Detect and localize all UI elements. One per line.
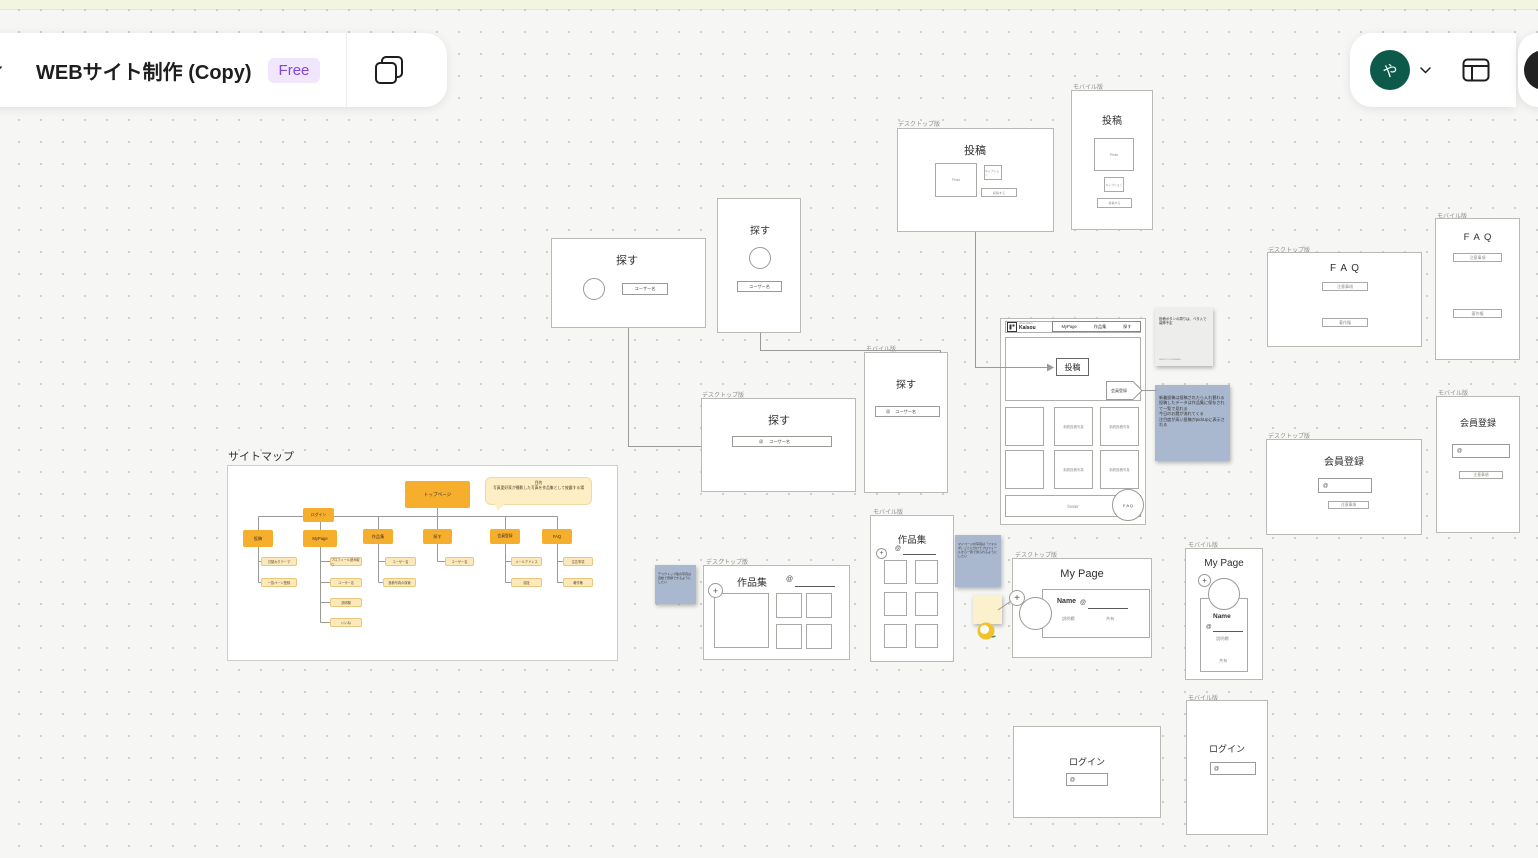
register-mobile-input[interactable]: @	[1452, 444, 1510, 458]
leaf-label: いいね	[341, 620, 351, 625]
search-desktop-title: 探す	[749, 412, 809, 428]
register-notes-label: 注意事項	[1341, 503, 1356, 508]
sitemap-leaf[interactable]: いいね	[330, 618, 362, 627]
sitemap-leaf[interactable]: 説明欄	[330, 598, 362, 607]
works-mobile-title: 作品集	[882, 532, 942, 546]
new-photo-label: 新着投稿写真	[1063, 424, 1083, 429]
leaf-label: ユーザー名	[393, 559, 409, 564]
leaf-label: 一覧ページ登録	[268, 580, 290, 585]
works-desktop-thumb[interactable]	[776, 624, 802, 649]
works-mobile-thumb[interactable]	[884, 560, 907, 584]
search-frame-mobile[interactable]	[864, 352, 948, 493]
sitemap-node-works[interactable]: 作品集	[363, 529, 393, 544]
login-desktop-title: ログイン	[1057, 755, 1117, 768]
node-label: 作品集	[372, 534, 385, 540]
sitemap-leaf[interactable]: ユーザー名	[330, 578, 362, 587]
file-title[interactable]: WEBサイト制作 (Copy)	[36, 56, 252, 85]
home-post-button[interactable]: 投稿	[1056, 358, 1089, 376]
mypage-desktop-share: 共有	[1106, 616, 1114, 622]
search-desktop-input[interactable]: @ ユーザー名	[732, 436, 832, 447]
nav-search[interactable]: 探す	[1123, 324, 1131, 330]
footer-label: footer	[1067, 504, 1078, 509]
sitemap-leaf[interactable]: ユーザー名	[445, 557, 474, 566]
node-label: 会員登録	[497, 534, 512, 539]
kaisou-logo-icon	[1007, 322, 1017, 332]
mypage-desktop-at: @	[1080, 600, 1086, 606]
post-mobile-submit-button[interactable]: 投稿する	[1097, 198, 1132, 208]
home-grid-box-1[interactable]	[1005, 407, 1044, 446]
avatar-initial: や	[1382, 60, 1397, 81]
register-mobile-notes-button[interactable]: 注意事項	[1459, 471, 1503, 479]
leaf-label: 認証	[523, 580, 529, 585]
faq-mobile-copyright-button[interactable]: 著作権	[1453, 309, 1502, 318]
avatar[interactable]: や	[1370, 50, 1410, 90]
at-symbol: @	[1214, 766, 1219, 772]
sitemap-node-post[interactable]: 投稿	[243, 530, 273, 547]
at-symbol: @	[759, 439, 763, 444]
faq-notes-label: 注意事項	[1337, 284, 1353, 290]
home-post-label: 投稿	[1065, 362, 1081, 373]
sitemap-login-label: ログイン	[311, 513, 326, 518]
sitemap-node-search[interactable]: 探す	[423, 529, 452, 544]
home-grid-box-4[interactable]	[1005, 450, 1044, 489]
mypage-mobile-name: Name	[1213, 613, 1231, 620]
search-b-avatar-circle[interactable]	[749, 247, 771, 269]
search-a-username-input[interactable]: ユーザー名	[622, 283, 668, 295]
sticky-gray-author: SACHITO KURIHARA	[1159, 359, 1181, 362]
at-symbol: @	[1070, 777, 1075, 783]
post-mobile-title: 投稿	[1082, 112, 1142, 127]
sitemap-leaf[interactable]: 注意事項	[563, 557, 593, 566]
at-symbol: @	[886, 409, 890, 414]
home-grid-box-6[interactable]: 新着投稿写真	[1100, 450, 1139, 489]
sitemap-top-label: トップページ	[424, 492, 451, 498]
photo-label: Photo	[1110, 153, 1118, 157]
register-desktop-title: 会員登録	[1314, 453, 1374, 468]
login-mobile-input[interactable]: @	[1210, 762, 1256, 775]
sticky-note-works-desktop[interactable]: デスクトップ版の写真は自動で登録できるようにしたい	[655, 565, 696, 604]
doodle-drawing	[976, 620, 999, 643]
node-label: MyPage	[312, 536, 327, 541]
faq-mobile-title: F A Q	[1448, 232, 1508, 243]
post-desktop-caption-box[interactable]: キャプション	[984, 165, 1002, 180]
search-desktop-username: ユーザー名	[769, 439, 790, 445]
login-frame-desktop[interactable]	[1013, 726, 1161, 818]
works-mobile-at: @	[895, 546, 901, 552]
mypage-desktop-desc: 説明欄	[1062, 616, 1075, 622]
nav-works[interactable]: 作品集	[1094, 324, 1107, 330]
leaf-label: 投稿写真の保管	[388, 580, 410, 585]
login-mobile-title: ログイン	[1197, 742, 1257, 755]
mypage-mobile-avatar-circle[interactable]	[1208, 578, 1240, 610]
home-grid-box-5[interactable]: 新着投稿写真	[1054, 450, 1093, 489]
faq-desktop-notes-button[interactable]: 注意事項	[1322, 282, 1368, 291]
works-desktop-main-box[interactable]	[714, 593, 769, 648]
leaf-label: メールアドレス	[515, 559, 537, 564]
caption-label: キャプション	[1106, 183, 1123, 187]
works-desktop-at: @	[786, 576, 793, 583]
leaf-label: 著作権	[573, 580, 583, 585]
file-toolbar: WEBサイト制作 (Copy) Free	[0, 33, 447, 107]
node-label: FAQ	[553, 534, 561, 539]
sitemap-node-mypage[interactable]: MyPage	[303, 530, 337, 547]
register-desktop-input[interactable]: @	[1318, 478, 1372, 493]
mypage-mobile-at-line[interactable]	[1213, 625, 1243, 632]
at-symbol: @	[1457, 448, 1462, 454]
leaf-label: 注意事項	[572, 559, 585, 564]
login-desktop-input[interactable]: @	[1066, 773, 1108, 786]
works-mobile-thumb[interactable]	[915, 592, 938, 616]
faq-mobile-notes-button[interactable]: 注意事項	[1453, 253, 1502, 262]
works-mobile-thumb[interactable]	[884, 592, 907, 616]
post-desktop-photo-box[interactable]: Photo	[935, 163, 977, 197]
home-nav-bar: MyPage 作品集 探す	[1052, 321, 1141, 332]
works-mobile-thumb[interactable]	[915, 560, 938, 584]
sticky-note-mypage[interactable]: マイページの写真は「フォルダ」ごとに分けてプロフィールから一覧で見られるようにし…	[955, 535, 1001, 587]
sticky-blue-mypage-text: マイページの写真は「フォルダ」ごとに分けてプロフィールから一覧で見られるようにし…	[958, 542, 997, 558]
nav-mypage[interactable]: MyPage	[1061, 324, 1076, 329]
svg-text:会員登録: 会員登録	[1111, 387, 1127, 393]
new-photo-label: 新着投稿写真	[1063, 467, 1083, 472]
sitemap-leaf[interactable]: 投稿写真の保管	[383, 578, 416, 587]
search-mobile-input[interactable]: @ ユーザー名	[875, 406, 940, 417]
plus-icon: +	[1202, 576, 1207, 585]
bubble-body: 写真愛好家が撮影した写真を作品集として披露する場	[490, 486, 587, 491]
sitemap-node-login[interactable]: ログイン	[303, 508, 334, 522]
leaf-label: 日替わりテーマ	[268, 559, 290, 564]
avatar-chevron-down-icon[interactable]	[1420, 61, 1431, 79]
post-mobile-caption-box[interactable]: キャプション	[1104, 177, 1124, 192]
mypage-mobile-plus-button[interactable]: +	[1198, 574, 1211, 587]
sticky-gray-text: 投稿ボタンの周りは、ベタ入で装飾予定	[1159, 317, 1206, 326]
post-mobile-photo-box[interactable]: Photo	[1094, 138, 1134, 171]
share-toolbar	[1518, 33, 1538, 107]
sitemap-node-faq[interactable]: FAQ	[542, 529, 572, 544]
account-toolbar: や	[1350, 33, 1516, 107]
plus-icon: +	[879, 550, 883, 557]
mypage-desktop-at-line[interactable]	[1088, 601, 1128, 609]
register-notes-label: 注意事項	[1473, 473, 1488, 478]
search-b-username-input[interactable]: ユーザー名	[737, 281, 782, 292]
works-desktop-plus-button[interactable]: +	[708, 583, 723, 598]
search-a-username: ユーザー名	[635, 286, 656, 292]
plan-badge[interactable]: Free	[268, 58, 321, 83]
mypage-desktop-title: My Page	[1052, 568, 1112, 580]
leaf-label: 説明欄	[341, 600, 351, 605]
leaf-label: ユーザー名	[452, 559, 468, 564]
at-symbol: @	[1323, 483, 1328, 489]
faq-notes-label: 注意事項	[1470, 255, 1486, 261]
sitemap-leaf[interactable]: 一覧ページ登録	[261, 578, 297, 587]
home-logo-text: Kaisou	[1019, 325, 1036, 331]
works-mobile-thumb[interactable]	[884, 624, 907, 648]
sitemap-heading: サイトマップ	[228, 448, 294, 464]
submit-label: 投稿する	[1108, 201, 1120, 205]
new-photo-label: 新着投稿写真	[1109, 424, 1129, 429]
home-grid-box-3[interactable]: 新着投稿写真	[1100, 407, 1139, 446]
mypage-desktop-card	[1042, 589, 1150, 638]
layout-panels-icon[interactable]	[1449, 33, 1503, 107]
home-grid-box-2[interactable]: 新着投稿写真	[1054, 407, 1093, 446]
sitemap-leaf[interactable]: 認証	[511, 578, 542, 587]
works-desktop-thumb[interactable]	[776, 593, 802, 618]
faq-desktop-title: F A Q	[1315, 263, 1375, 274]
mypage-desktop-name: Name	[1057, 598, 1076, 605]
node-label: 投稿	[254, 536, 262, 542]
faq-copyright-label: 著作権	[1339, 320, 1351, 326]
sitemap-leaf[interactable]: 著作権	[563, 578, 593, 587]
sitemap-leaf[interactable]: プロフィール読み取り	[330, 557, 362, 566]
plus-icon: +	[1014, 593, 1020, 604]
leaf-label: プロフィール読み取り	[331, 557, 361, 567]
home-register-arrow[interactable]: 会員登録	[1106, 381, 1143, 400]
home-faq-label: F A Q	[1123, 503, 1133, 508]
post-desktop-title: 投稿	[945, 142, 1005, 158]
sticky-note-doodle[interactable]	[973, 595, 1002, 624]
search-a-avatar-circle[interactable]	[583, 278, 605, 300]
sitemap-leaf[interactable]: ユーザー名	[385, 557, 416, 566]
caption-label: キャプション	[985, 169, 1001, 177]
search-b-title: 探す	[730, 222, 790, 237]
mypage-mobile-title: My Page	[1194, 558, 1254, 569]
register-mobile-title: 会員登録	[1448, 416, 1508, 429]
photo-label: Photo	[952, 178, 960, 182]
post-desktop-label: デスクトップ版	[898, 119, 940, 128]
register-desktop-notes-button[interactable]: 注意事項	[1328, 501, 1369, 509]
works-mobile-thumb[interactable]	[915, 624, 938, 648]
sticky-blue-works-text: デスクトップ版の写真は自動で登録できるようにしたい	[658, 572, 691, 584]
home-faq-circle[interactable]: F A Q	[1112, 489, 1144, 521]
works-mobile-at-line[interactable]	[903, 547, 936, 555]
new-photo-label: 新着投稿写真	[1109, 467, 1129, 472]
plus-icon: +	[713, 586, 718, 596]
search-b-username: ユーザー名	[749, 284, 770, 290]
search-mobile-title: 探す	[876, 376, 936, 391]
works-mobile-plus-button[interactable]: +	[876, 548, 887, 559]
sticky-blue-post-text: 新着投稿は投稿されたら入れ替わる 投稿したデータは作品集に保存されて一覧で見れる…	[1159, 395, 1225, 428]
submit-label: 投稿する	[993, 191, 1005, 195]
sitemap-purpose-bubble[interactable]: 目的 写真愛好家が撮影した写真を作品集として披露する場	[485, 477, 592, 505]
sitemap-leaf[interactable]: 日替わりテーマ	[261, 557, 297, 566]
chevron-down-icon[interactable]	[0, 33, 20, 107]
works-desktop-thumb[interactable]	[806, 593, 832, 618]
copy-pages-icon[interactable]	[347, 33, 431, 107]
node-label: 探す	[433, 534, 441, 540]
post-desktop-submit-button[interactable]: 投稿する	[981, 188, 1017, 197]
faq-copyright-label: 著作権	[1472, 311, 1484, 317]
sitemap-leaf[interactable]: メールアドレス	[511, 557, 542, 566]
mypage-desktop-avatar-circle[interactable]	[1019, 597, 1052, 630]
sitemap-node-top[interactable]: トップページ	[405, 481, 470, 508]
search-a-title: 探す	[597, 252, 657, 268]
faq-desktop-copyright-button[interactable]: 著作権	[1322, 318, 1368, 327]
dark-action-circle[interactable]	[1524, 50, 1538, 90]
works-desktop-title: 作品集	[722, 574, 782, 589]
search-mobile-username: ユーザー名	[895, 409, 916, 415]
works-desktop-at-line[interactable]	[795, 578, 835, 587]
sticky-note-post-button[interactable]: 投稿ボタンの周りは、ベタ入で装飾予定 SACHITO KURIHARA	[1155, 308, 1213, 366]
mypage-mobile-desc: 説明欄	[1216, 636, 1229, 642]
works-desktop-thumb[interactable]	[806, 624, 832, 649]
sticky-note-new-posts[interactable]: 新着投稿は投稿されたら入れ替わる 投稿したデータは作品集に保存されて一覧で見れる…	[1155, 385, 1230, 461]
leaf-label: ユーザー名	[338, 580, 354, 585]
mypage-mobile-share: 共有	[1219, 658, 1227, 664]
sitemap-node-register[interactable]: 会員登録	[490, 529, 520, 544]
mypage-mobile-at: @	[1206, 624, 1212, 630]
